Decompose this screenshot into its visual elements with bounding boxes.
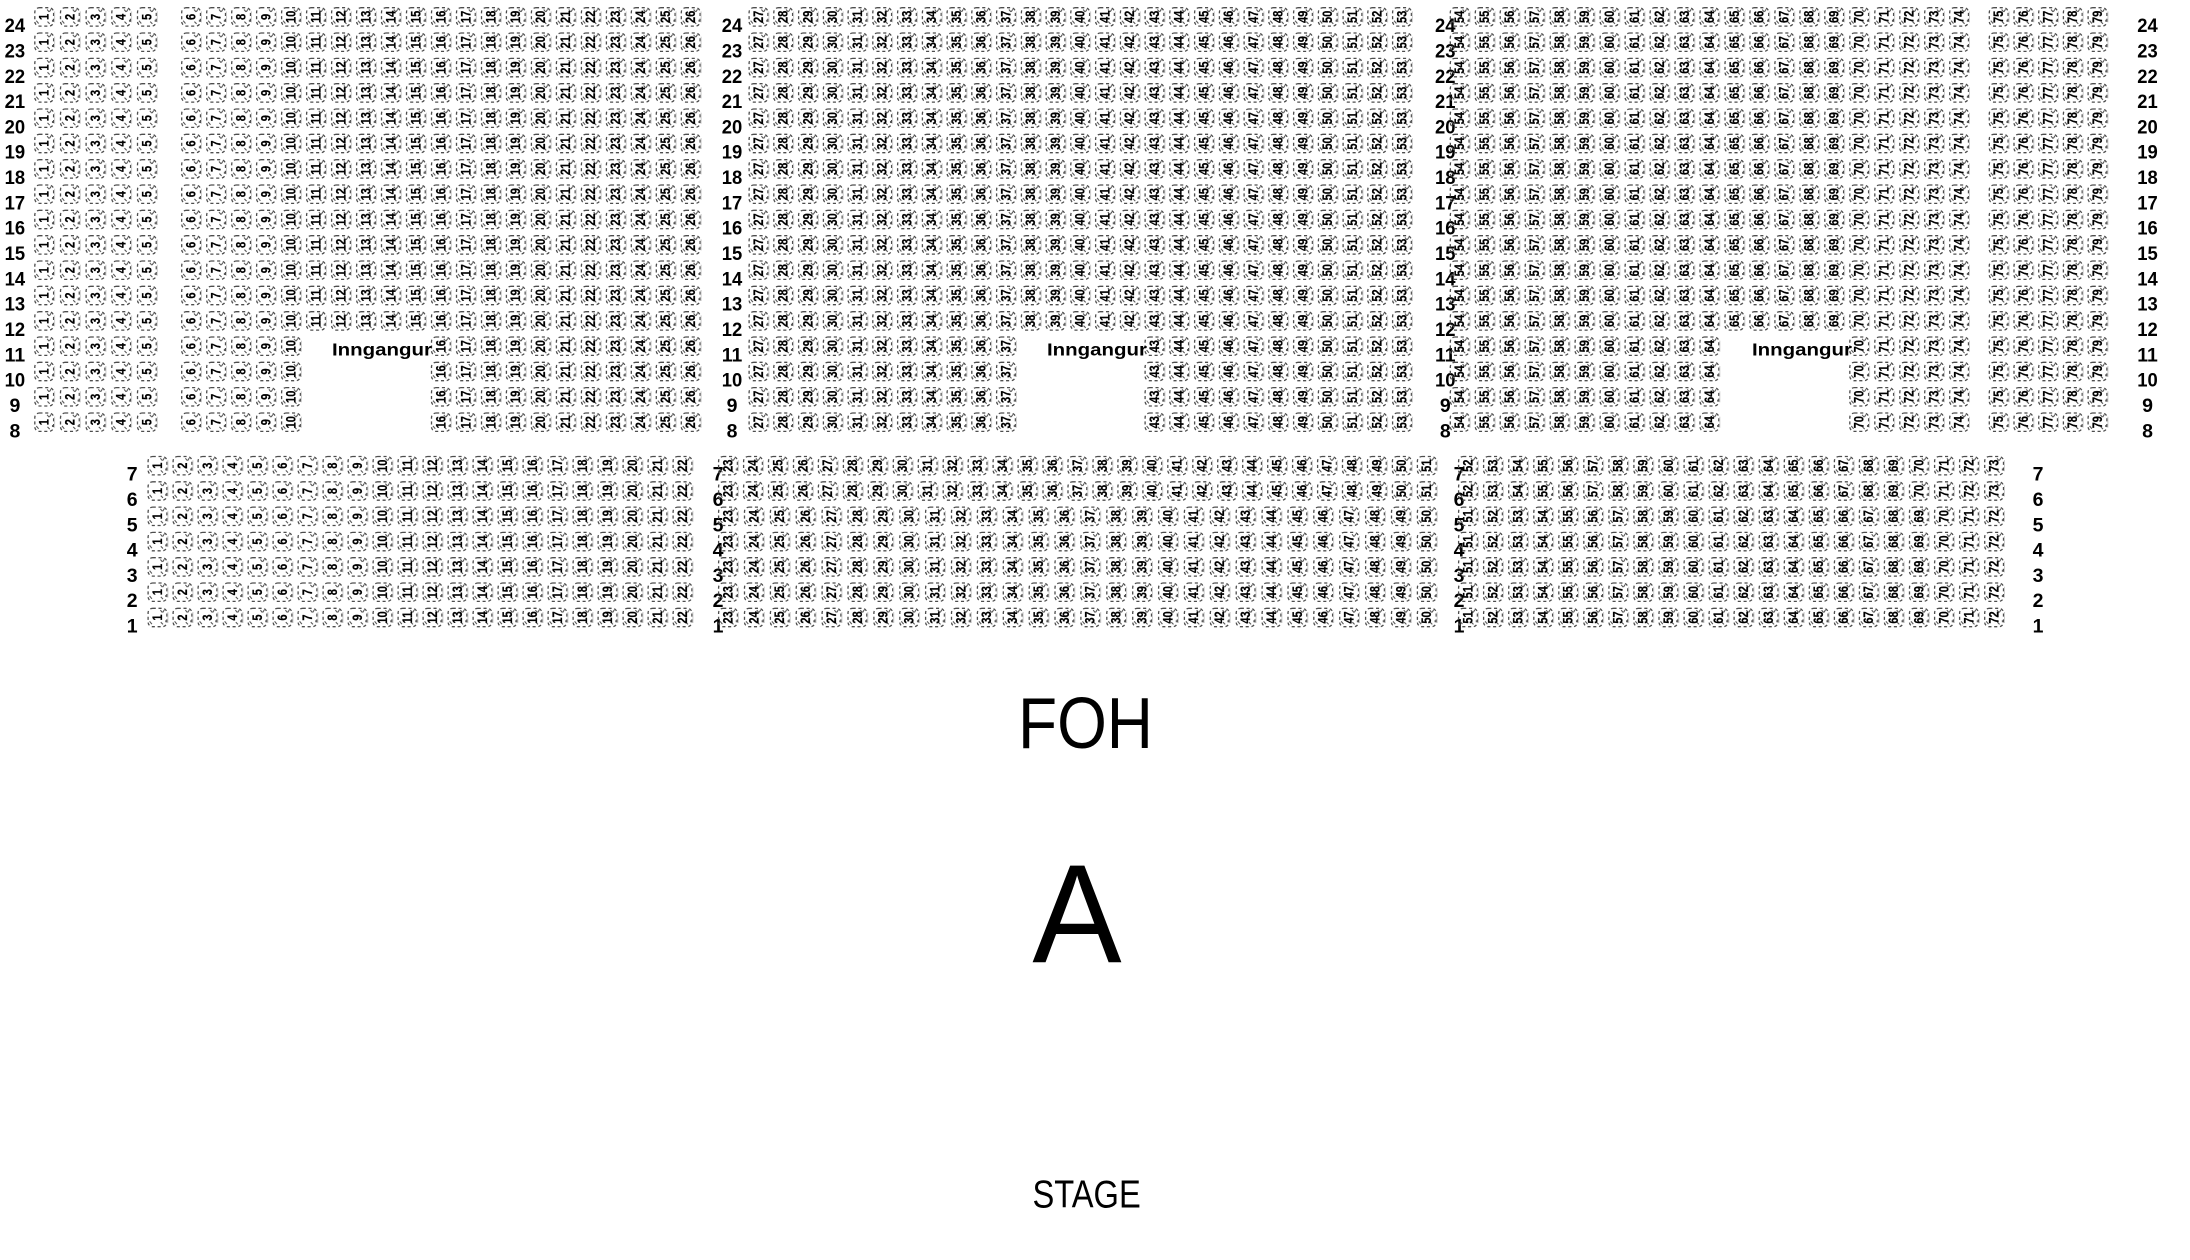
svg-text:36: 36: [1043, 460, 1060, 472]
svg-text:3: 3: [87, 343, 104, 349]
svg-text:10: 10: [282, 163, 299, 175]
svg-text:36: 36: [1055, 535, 1072, 547]
svg-text:28: 28: [774, 137, 791, 149]
svg-text:1: 1: [35, 368, 52, 374]
svg-text:3: 3: [199, 589, 216, 595]
svg-text:55: 55: [1476, 137, 1493, 149]
svg-text:54: 54: [1534, 561, 1551, 573]
svg-text:14: 14: [474, 586, 491, 598]
svg-text:24: 24: [632, 188, 649, 200]
svg-text:21: 21: [649, 510, 666, 522]
svg-text:70: 70: [1850, 416, 1867, 428]
svg-text:35: 35: [1019, 485, 1036, 497]
svg-text:44: 44: [1263, 586, 1280, 598]
svg-text:16: 16: [524, 485, 541, 497]
svg-text:1: 1: [127, 616, 138, 638]
svg-text:52: 52: [1368, 239, 1385, 251]
svg-text:43: 43: [1146, 188, 1163, 200]
svg-text:66: 66: [1835, 535, 1852, 547]
svg-text:68: 68: [1800, 61, 1817, 73]
svg-text:50: 50: [1418, 535, 1435, 547]
svg-text:1: 1: [149, 564, 166, 570]
svg-text:11: 11: [307, 62, 324, 74]
svg-text:41: 41: [1096, 87, 1113, 99]
svg-text:57: 57: [1526, 340, 1543, 352]
svg-text:55: 55: [1476, 239, 1493, 251]
svg-text:35: 35: [948, 213, 965, 225]
svg-text:22: 22: [582, 61, 599, 73]
svg-text:5: 5: [249, 564, 266, 570]
svg-text:28: 28: [848, 611, 865, 623]
svg-text:55: 55: [1559, 561, 1576, 573]
svg-text:30: 30: [824, 340, 841, 352]
svg-text:64: 64: [1700, 365, 1717, 377]
svg-text:23: 23: [722, 40, 743, 62]
svg-text:59: 59: [1576, 239, 1593, 251]
svg-text:6: 6: [182, 14, 199, 20]
svg-text:74: 74: [1950, 11, 1967, 23]
svg-text:29: 29: [869, 485, 886, 497]
svg-text:24: 24: [632, 315, 649, 327]
svg-text:3: 3: [199, 539, 216, 545]
svg-text:19: 19: [507, 391, 524, 403]
svg-text:60: 60: [1601, 239, 1618, 251]
svg-text:8: 8: [232, 394, 249, 400]
svg-text:4: 4: [112, 65, 129, 71]
svg-text:71: 71: [1875, 213, 1892, 225]
svg-text:5: 5: [127, 514, 138, 536]
svg-text:60: 60: [1601, 340, 1618, 352]
svg-text:71: 71: [1960, 535, 1977, 547]
svg-text:7: 7: [299, 463, 316, 469]
svg-text:8: 8: [324, 589, 341, 595]
svg-text:14: 14: [382, 163, 399, 175]
svg-text:19: 19: [507, 239, 524, 251]
svg-text:53: 53: [1393, 188, 1410, 200]
svg-text:40: 40: [1071, 87, 1088, 99]
svg-text:51: 51: [1344, 239, 1361, 251]
svg-text:19: 19: [2137, 142, 2158, 164]
svg-text:37: 37: [997, 163, 1014, 175]
svg-text:21: 21: [557, 112, 574, 124]
svg-text:68: 68: [1885, 510, 1902, 522]
svg-text:64: 64: [1785, 611, 1802, 623]
svg-text:62: 62: [1651, 188, 1668, 200]
svg-text:17: 17: [5, 192, 26, 214]
svg-text:2: 2: [174, 539, 191, 545]
svg-text:19: 19: [599, 535, 616, 547]
svg-text:46: 46: [1220, 239, 1237, 251]
svg-text:51: 51: [1418, 485, 1435, 497]
svg-text:77: 77: [2039, 416, 2056, 428]
svg-text:27: 27: [750, 112, 767, 124]
svg-text:24: 24: [632, 11, 649, 23]
svg-text:3: 3: [87, 368, 104, 374]
svg-text:69: 69: [1825, 36, 1842, 48]
svg-text:36: 36: [972, 137, 989, 149]
svg-text:31: 31: [849, 87, 866, 99]
svg-text:69: 69: [1910, 510, 1927, 522]
svg-text:45: 45: [1195, 391, 1212, 403]
svg-text:22: 22: [2137, 66, 2158, 88]
svg-text:15: 15: [407, 163, 424, 175]
svg-text:49: 49: [1294, 365, 1311, 377]
svg-text:9: 9: [257, 191, 274, 197]
svg-text:50: 50: [1319, 264, 1336, 276]
svg-text:61: 61: [1626, 112, 1643, 124]
svg-text:46: 46: [1314, 535, 1331, 547]
svg-text:55: 55: [1534, 460, 1551, 472]
svg-text:22: 22: [722, 66, 743, 88]
svg-text:61: 61: [1626, 36, 1643, 48]
svg-text:59: 59: [1659, 510, 1676, 522]
svg-text:10: 10: [282, 315, 299, 327]
svg-text:27: 27: [750, 61, 767, 73]
svg-text:13: 13: [357, 112, 374, 124]
svg-text:57: 57: [1609, 611, 1626, 623]
svg-text:79: 79: [2089, 36, 2106, 48]
svg-text:2: 2: [61, 419, 78, 425]
svg-text:9: 9: [349, 614, 366, 620]
svg-text:77: 77: [2039, 315, 2056, 327]
svg-text:51: 51: [1418, 460, 1435, 472]
svg-text:63: 63: [1675, 315, 1692, 327]
svg-text:13: 13: [2137, 294, 2158, 316]
svg-text:15: 15: [407, 137, 424, 149]
svg-text:62: 62: [1651, 416, 1668, 428]
svg-text:73: 73: [1925, 416, 1942, 428]
svg-text:70: 70: [1935, 561, 1952, 573]
svg-text:57: 57: [1526, 61, 1543, 73]
svg-text:57: 57: [1609, 535, 1626, 547]
svg-text:25: 25: [657, 391, 674, 403]
svg-text:34: 34: [923, 239, 940, 251]
svg-text:11: 11: [5, 344, 26, 366]
svg-text:58: 58: [1551, 416, 1568, 428]
svg-text:58: 58: [1634, 611, 1651, 623]
svg-text:43: 43: [1146, 365, 1163, 377]
svg-text:63: 63: [1675, 188, 1692, 200]
svg-text:63: 63: [1675, 264, 1692, 276]
svg-text:49: 49: [1294, 36, 1311, 48]
svg-text:43: 43: [1146, 391, 1163, 403]
svg-text:29: 29: [874, 561, 891, 573]
svg-text:63: 63: [1675, 289, 1692, 301]
svg-text:72: 72: [1985, 561, 2002, 573]
svg-text:44: 44: [1170, 36, 1187, 48]
svg-text:32: 32: [873, 365, 890, 377]
svg-text:12: 12: [332, 11, 349, 23]
svg-text:15: 15: [407, 289, 424, 301]
svg-text:56: 56: [1501, 239, 1518, 251]
svg-text:2: 2: [61, 115, 78, 121]
svg-text:30: 30: [894, 460, 911, 472]
svg-text:16: 16: [432, 36, 449, 48]
svg-text:49: 49: [1392, 535, 1409, 547]
svg-text:41: 41: [1096, 315, 1113, 327]
svg-text:29: 29: [874, 510, 891, 522]
svg-text:1: 1: [149, 463, 166, 469]
svg-text:62: 62: [1651, 213, 1668, 225]
svg-text:51: 51: [1344, 112, 1361, 124]
svg-text:40: 40: [1159, 535, 1176, 547]
svg-text:21: 21: [557, 391, 574, 403]
svg-text:28: 28: [774, 289, 791, 301]
svg-text:18: 18: [482, 11, 499, 23]
svg-text:74: 74: [1950, 61, 1967, 73]
svg-text:30: 30: [824, 137, 841, 149]
svg-text:24: 24: [632, 87, 649, 99]
svg-text:73: 73: [1985, 460, 2002, 472]
svg-text:63: 63: [1675, 416, 1692, 428]
svg-text:37: 37: [1081, 535, 1098, 547]
svg-text:19: 19: [507, 61, 524, 73]
svg-text:30: 30: [824, 163, 841, 175]
svg-text:47: 47: [1340, 535, 1357, 547]
svg-text:71: 71: [1875, 61, 1892, 73]
svg-text:59: 59: [1576, 315, 1593, 327]
svg-text:49: 49: [1294, 112, 1311, 124]
svg-text:35: 35: [1030, 561, 1047, 573]
svg-text:57: 57: [1609, 510, 1626, 522]
svg-text:48: 48: [1269, 36, 1286, 48]
svg-text:67: 67: [1775, 11, 1792, 23]
svg-text:10: 10: [374, 586, 391, 598]
svg-text:3: 3: [87, 419, 104, 425]
svg-text:71: 71: [1875, 11, 1892, 23]
svg-text:26: 26: [682, 264, 699, 276]
svg-text:16: 16: [432, 365, 449, 377]
svg-text:64: 64: [1700, 391, 1717, 403]
svg-text:73: 73: [1925, 289, 1942, 301]
svg-text:4: 4: [112, 115, 129, 121]
svg-text:9: 9: [257, 292, 274, 298]
svg-text:34: 34: [923, 112, 940, 124]
svg-text:66: 66: [1835, 510, 1852, 522]
svg-text:42: 42: [1121, 264, 1138, 276]
svg-text:23: 23: [719, 611, 736, 623]
svg-text:18: 18: [574, 485, 591, 497]
svg-text:61: 61: [1626, 264, 1643, 276]
svg-text:28: 28: [774, 87, 791, 99]
svg-text:47: 47: [1245, 416, 1262, 428]
svg-text:56: 56: [1559, 485, 1576, 497]
svg-text:55: 55: [1476, 416, 1493, 428]
svg-text:42: 42: [1121, 61, 1138, 73]
svg-text:21: 21: [557, 416, 574, 428]
svg-text:57: 57: [1526, 112, 1543, 124]
svg-text:59: 59: [1659, 535, 1676, 547]
svg-text:64: 64: [1700, 188, 1717, 200]
svg-text:66: 66: [1750, 87, 1767, 99]
svg-text:73: 73: [1925, 137, 1942, 149]
svg-text:60: 60: [1601, 188, 1618, 200]
svg-text:62: 62: [1735, 535, 1752, 547]
svg-text:52: 52: [1459, 460, 1476, 472]
svg-text:59: 59: [1576, 416, 1593, 428]
svg-text:66: 66: [1750, 239, 1767, 251]
svg-text:38: 38: [1022, 163, 1039, 175]
svg-text:46: 46: [1220, 137, 1237, 149]
svg-text:53: 53: [1393, 264, 1410, 276]
svg-text:51: 51: [1344, 137, 1361, 149]
svg-text:19: 19: [507, 188, 524, 200]
svg-text:24: 24: [632, 365, 649, 377]
svg-text:53: 53: [1393, 289, 1410, 301]
svg-text:33: 33: [898, 188, 915, 200]
svg-text:36: 36: [972, 239, 989, 251]
svg-text:6: 6: [182, 65, 199, 71]
svg-text:30: 30: [824, 264, 841, 276]
svg-text:69: 69: [1885, 460, 1902, 472]
svg-text:50: 50: [1319, 87, 1336, 99]
svg-text:67: 67: [1860, 561, 1877, 573]
svg-text:34: 34: [923, 264, 940, 276]
svg-text:60: 60: [1659, 485, 1676, 497]
svg-text:13: 13: [357, 264, 374, 276]
svg-text:5: 5: [2033, 514, 2044, 536]
svg-text:23: 23: [719, 535, 736, 547]
svg-text:57: 57: [1526, 163, 1543, 175]
svg-text:72: 72: [1900, 239, 1917, 251]
svg-text:28: 28: [774, 36, 791, 48]
svg-text:40: 40: [1071, 188, 1088, 200]
svg-text:43: 43: [1146, 11, 1163, 23]
svg-text:42: 42: [1211, 535, 1228, 547]
svg-text:58: 58: [1551, 289, 1568, 301]
svg-text:17: 17: [457, 112, 474, 124]
svg-text:7: 7: [207, 191, 224, 197]
svg-text:52: 52: [1368, 36, 1385, 48]
svg-text:39: 39: [1133, 586, 1150, 598]
svg-text:14: 14: [382, 213, 399, 225]
svg-text:27: 27: [823, 561, 840, 573]
svg-text:55: 55: [1476, 213, 1493, 225]
svg-text:9: 9: [257, 166, 274, 172]
svg-text:34: 34: [923, 340, 940, 352]
svg-text:76: 76: [2014, 340, 2031, 352]
svg-text:70: 70: [1850, 391, 1867, 403]
svg-text:74: 74: [1950, 365, 1967, 377]
svg-text:25: 25: [657, 112, 674, 124]
svg-text:32: 32: [873, 391, 890, 403]
svg-text:62: 62: [1651, 137, 1668, 149]
svg-text:20: 20: [624, 485, 641, 497]
svg-text:55: 55: [1476, 188, 1493, 200]
svg-text:37: 37: [997, 365, 1014, 377]
svg-text:15: 15: [407, 264, 424, 276]
svg-text:67: 67: [1775, 188, 1792, 200]
svg-text:19: 19: [599, 611, 616, 623]
svg-text:50: 50: [1418, 586, 1435, 598]
svg-text:60: 60: [1601, 289, 1618, 301]
svg-text:23: 23: [5, 40, 26, 62]
svg-text:61: 61: [1626, 163, 1643, 175]
svg-text:6: 6: [182, 267, 199, 273]
svg-text:10: 10: [2137, 370, 2158, 392]
svg-text:5: 5: [249, 463, 266, 469]
svg-text:8: 8: [232, 166, 249, 172]
svg-text:4: 4: [112, 166, 129, 172]
svg-text:2: 2: [61, 216, 78, 222]
svg-text:28: 28: [774, 315, 791, 327]
svg-text:43: 43: [1146, 315, 1163, 327]
svg-text:66: 66: [1750, 11, 1767, 23]
svg-text:34: 34: [1004, 535, 1021, 547]
svg-text:12: 12: [424, 535, 441, 547]
svg-text:39: 39: [1047, 61, 1064, 73]
svg-text:12: 12: [2137, 319, 2158, 341]
svg-text:4: 4: [112, 216, 129, 222]
svg-text:21: 21: [649, 460, 666, 472]
svg-text:53: 53: [1393, 61, 1410, 73]
svg-text:49: 49: [1294, 289, 1311, 301]
svg-text:40: 40: [1159, 561, 1176, 573]
svg-text:50: 50: [1319, 61, 1336, 73]
svg-text:57: 57: [1526, 239, 1543, 251]
svg-text:11: 11: [307, 214, 324, 226]
svg-text:44: 44: [1170, 239, 1187, 251]
svg-text:13: 13: [357, 36, 374, 48]
svg-text:16: 16: [432, 61, 449, 73]
svg-text:9: 9: [349, 488, 366, 494]
svg-text:59: 59: [1576, 36, 1593, 48]
svg-text:41: 41: [1168, 485, 1185, 497]
svg-text:31: 31: [926, 510, 943, 522]
svg-text:24: 24: [632, 289, 649, 301]
svg-text:2: 2: [61, 343, 78, 349]
svg-text:10: 10: [282, 340, 299, 352]
svg-text:48: 48: [1366, 535, 1383, 547]
svg-text:65: 65: [1725, 11, 1742, 23]
svg-text:54: 54: [1451, 137, 1468, 149]
svg-text:12: 12: [332, 289, 349, 301]
svg-text:49: 49: [1392, 510, 1409, 522]
svg-text:36: 36: [1055, 586, 1072, 598]
svg-text:62: 62: [1651, 112, 1668, 124]
svg-text:74: 74: [1950, 264, 1967, 276]
svg-text:8: 8: [324, 463, 341, 469]
svg-text:45: 45: [1195, 213, 1212, 225]
svg-text:35: 35: [948, 239, 965, 251]
svg-text:7: 7: [207, 292, 224, 298]
svg-text:21: 21: [649, 535, 666, 547]
svg-text:16: 16: [432, 416, 449, 428]
svg-text:36: 36: [972, 112, 989, 124]
svg-text:18: 18: [482, 340, 499, 352]
svg-text:65: 65: [1810, 535, 1827, 547]
svg-text:67: 67: [1775, 289, 1792, 301]
svg-text:46: 46: [1220, 36, 1237, 48]
svg-text:52: 52: [1368, 416, 1385, 428]
svg-text:70: 70: [1935, 510, 1952, 522]
svg-text:55: 55: [1476, 264, 1493, 276]
svg-text:6: 6: [182, 394, 199, 400]
svg-text:50: 50: [1319, 239, 1336, 251]
svg-text:70: 70: [1935, 586, 1952, 598]
svg-text:75: 75: [1990, 61, 2007, 73]
svg-text:75: 75: [1990, 315, 2007, 327]
svg-text:78: 78: [2064, 416, 2081, 428]
svg-text:26: 26: [682, 365, 699, 377]
svg-text:4: 4: [224, 463, 241, 469]
svg-text:37: 37: [997, 213, 1014, 225]
svg-text:19: 19: [507, 163, 524, 175]
svg-text:11: 11: [307, 264, 324, 276]
svg-text:67: 67: [1775, 36, 1792, 48]
svg-text:9: 9: [257, 394, 274, 400]
svg-text:20: 20: [624, 611, 641, 623]
